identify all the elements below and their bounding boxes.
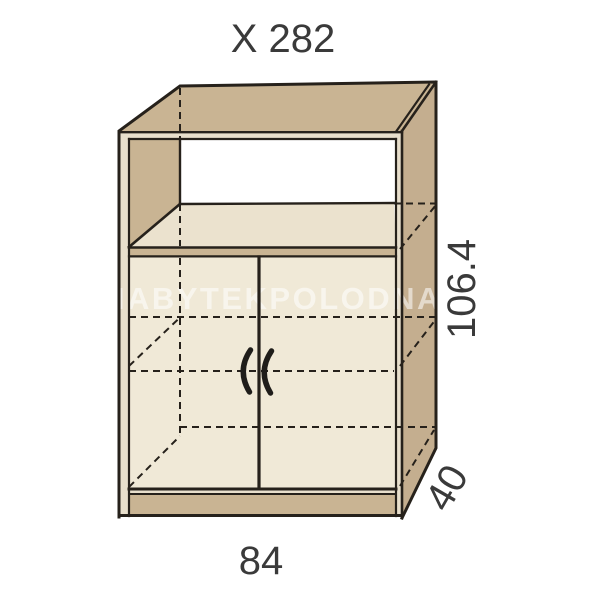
dimension-height-label: 106.4 (440, 239, 484, 339)
niche-open-back (180, 139, 396, 204)
shelf-back-edge (180, 203, 394, 204)
dimension-width-label: 84 (239, 539, 284, 583)
cabinet-drawing: NABYTEKPOLODNA (0, 0, 600, 600)
top-panel-face (119, 82, 436, 131)
plinth (129, 494, 396, 516)
dimension-top-label: X 282 (231, 17, 336, 61)
watermark-text: NABYTEKPOLODNA (102, 281, 442, 316)
furniture-diagram: NABYTEKPOLODNA (0, 0, 600, 600)
